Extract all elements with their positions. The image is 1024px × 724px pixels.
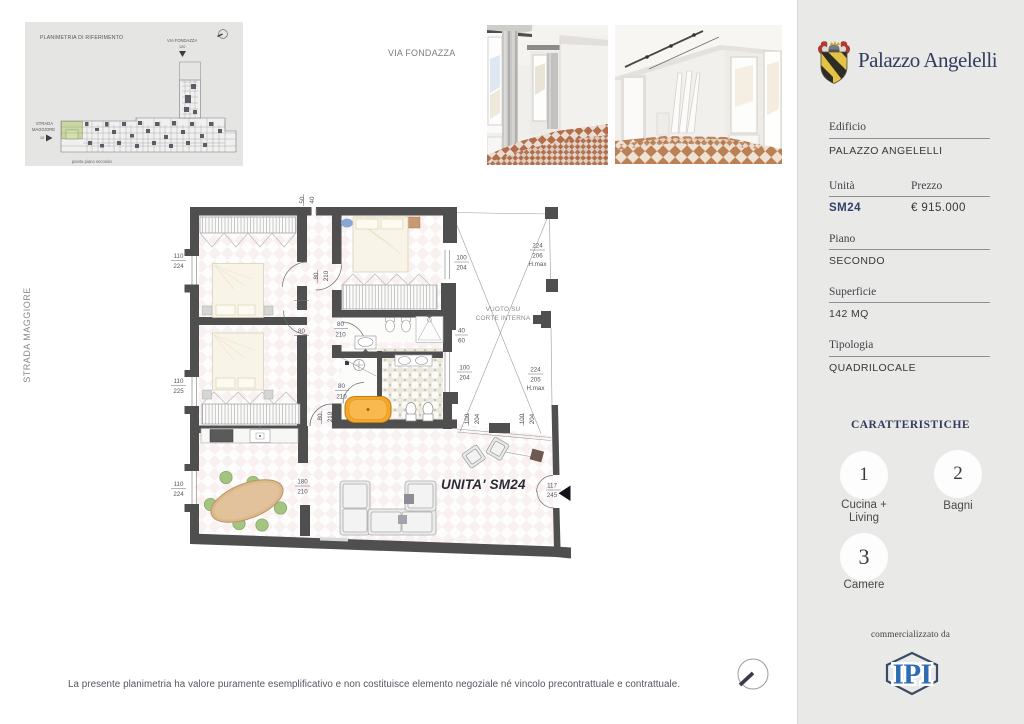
svg-text:224: 224 (173, 491, 184, 498)
svg-text:80: 80 (317, 413, 324, 420)
svg-text:PLANIMETRIA DI RIFERIMENTO: PLANIMETRIA DI RIFERIMENTO (40, 35, 123, 41)
svg-text:224: 224 (173, 263, 184, 270)
svg-text:117: 117 (547, 483, 557, 490)
svg-text:210: 210 (296, 303, 307, 310)
svg-text:210: 210 (323, 270, 330, 281)
svg-text:100: 100 (459, 365, 470, 372)
svg-text:110: 110 (174, 481, 184, 488)
svg-text:50: 50 (299, 196, 306, 203)
svg-text:210: 210 (336, 394, 347, 401)
svg-text:120: 120 (179, 45, 185, 49)
svg-text:STRADA: STRADA (36, 121, 53, 126)
svg-text:110: 110 (174, 378, 184, 385)
svg-text:80: 80 (298, 328, 305, 335)
svg-text:40: 40 (458, 328, 465, 335)
svg-text:60: 60 (458, 338, 465, 345)
svg-text:MAGGIORE: MAGGIORE (32, 127, 55, 132)
svg-text:204: 204 (456, 265, 467, 272)
svg-text:206: 206 (532, 253, 543, 260)
svg-text:IPI: IPI (893, 659, 932, 691)
svg-text:100: 100 (456, 255, 467, 262)
svg-text:210: 210 (297, 489, 308, 496)
svg-text:H.max: H.max (529, 261, 548, 268)
svg-text:210: 210 (335, 332, 346, 339)
svg-text:UNITA' SM24: UNITA' SM24 (441, 477, 526, 492)
svg-text:110: 110 (174, 253, 184, 260)
svg-text:204: 204 (529, 413, 536, 424)
svg-text:10: 10 (40, 136, 44, 140)
svg-text:80: 80 (337, 321, 344, 328)
svg-text:80: 80 (313, 272, 320, 279)
svg-text:205: 205 (530, 377, 541, 384)
svg-text:CORTE INTERNA: CORTE INTERNA (476, 315, 531, 322)
svg-text:VUOTO SU: VUOTO SU (486, 306, 521, 313)
svg-text:245: 245 (547, 492, 558, 499)
svg-text:100: 100 (464, 413, 471, 424)
svg-text:80: 80 (298, 293, 305, 300)
svg-text:80: 80 (338, 383, 345, 390)
svg-text:40: 40 (309, 196, 316, 203)
svg-text:210: 210 (296, 338, 307, 345)
svg-text:224: 224 (532, 243, 543, 250)
svg-text:225: 225 (173, 388, 184, 395)
svg-text:100: 100 (519, 413, 526, 424)
svg-text:pianta piano secondo: pianta piano secondo (72, 159, 112, 164)
svg-text:224: 224 (530, 367, 541, 374)
svg-text:210: 210 (327, 411, 334, 422)
svg-text:H.max: H.max (527, 385, 546, 392)
svg-text:204: 204 (459, 375, 470, 382)
svg-text:180: 180 (297, 479, 308, 486)
svg-text:VIA FONDAZZA: VIA FONDAZZA (167, 38, 197, 43)
svg-text:204: 204 (474, 413, 481, 424)
